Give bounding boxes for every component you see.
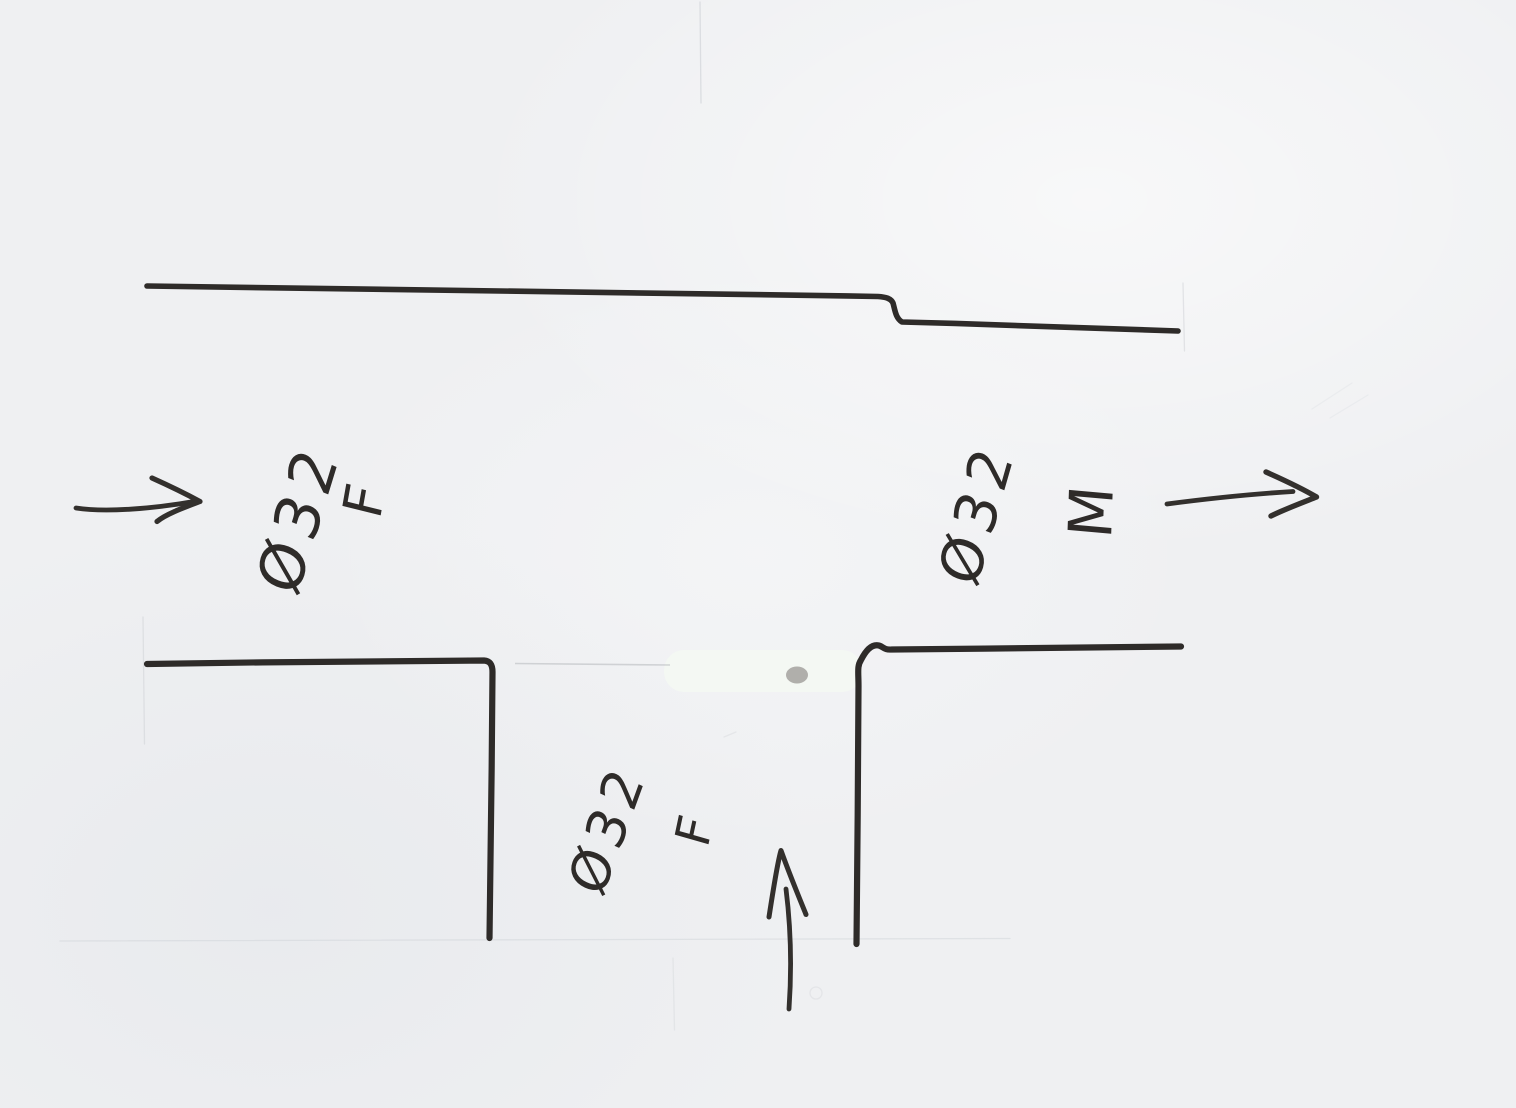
paper-crease-lines	[60, 2, 1368, 1030]
pipe-outline	[147, 286, 1181, 944]
left-inlet-arrow	[76, 478, 200, 522]
crease-left-vertical	[143, 617, 145, 744]
bottom-inlet-arrow	[769, 851, 806, 1010]
faint-pen-ghost-mark	[810, 987, 822, 999]
gray-smudge-dot	[786, 667, 808, 684]
top-wall-line	[147, 286, 1178, 331]
whiteout-correction	[515, 650, 862, 692]
branch-right-and-bottom-right-wall	[857, 645, 1182, 944]
crease-right-vertical	[1183, 283, 1185, 351]
right-port-gender-label: M	[1061, 484, 1123, 541]
faint-tick-mark	[724, 732, 736, 737]
whiteout-patch	[664, 650, 862, 692]
faint-scratch-marks	[1312, 383, 1368, 418]
right-outlet-arrow-stem	[1167, 492, 1293, 505]
bottom-inlet-arrow-stem	[786, 889, 791, 1009]
crease-top-vertical	[700, 2, 701, 103]
erased-pencil-line	[515, 664, 670, 666]
pencil-guide-horizontal	[60, 939, 1010, 942]
left-inlet-arrow-head	[152, 478, 200, 522]
bottom-left-wall-and-branch-left	[147, 661, 493, 939]
right-outlet-arrow	[1167, 472, 1317, 516]
tee-fitting-sketch	[0, 0, 1516, 1108]
crease-bottom-vertical	[673, 958, 675, 1030]
